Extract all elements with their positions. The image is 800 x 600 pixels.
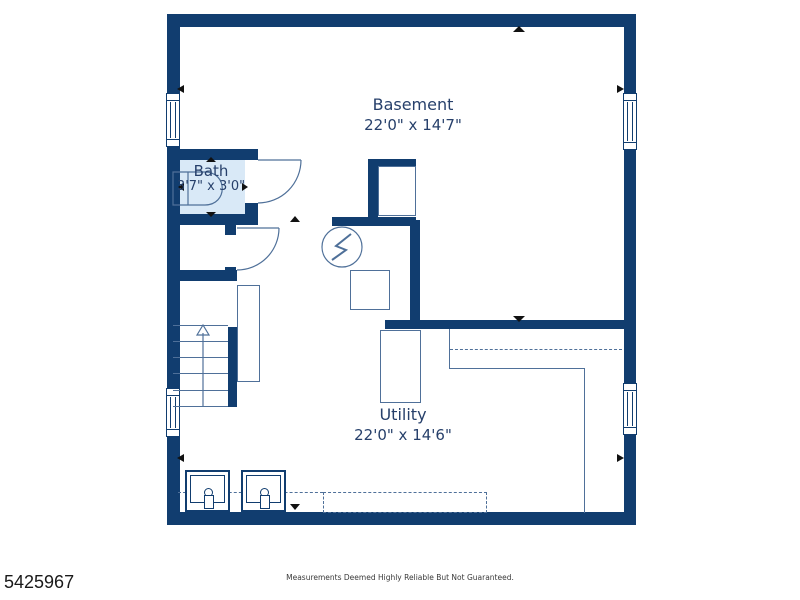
storage-boundary-line — [449, 368, 584, 369]
stairs-direction-arrow — [197, 325, 209, 407]
stair-tread — [173, 325, 228, 326]
room-label-bath: Bath 3'7" x 3'0" — [163, 163, 259, 195]
wall-top — [167, 14, 636, 27]
window-glass — [627, 102, 633, 141]
wall-left-upper — [167, 14, 180, 93]
laundry-tub-icon — [185, 470, 230, 512]
dashed-line — [450, 349, 622, 350]
electrical-panel-icon — [322, 227, 362, 267]
window-left-top — [166, 93, 180, 147]
room-label-basement: Basement 22'0" x 14'7" — [313, 94, 513, 136]
wall-left-lower — [167, 437, 180, 525]
window-sill — [167, 100, 179, 101]
stair-tread — [173, 390, 228, 391]
wall-right-upper — [624, 14, 636, 93]
wall-bottom — [167, 512, 636, 525]
stair-side-structure — [237, 285, 260, 382]
window-sill — [624, 427, 636, 428]
stair-wall — [228, 327, 237, 407]
stair-tread — [173, 357, 228, 358]
room-dimensions: 3'7" x 3'0" — [163, 179, 259, 195]
closet-wall-bottom — [167, 270, 237, 281]
closet-wall-right-upper — [225, 225, 236, 235]
room-dimensions: 22'0" x 14'7" — [313, 115, 513, 136]
dashed-area — [323, 492, 487, 513]
floorplan-canvas: Basement 22'0" x 14'7" Bath 3'7" x 3'0" … — [0, 0, 800, 600]
window-sill — [624, 100, 636, 101]
window-glass — [170, 102, 176, 138]
window-sill — [624, 390, 636, 391]
window-right-bottom — [623, 383, 637, 435]
room-dimensions: 22'0" x 14'6" — [303, 425, 503, 446]
wall-right-lower — [624, 435, 636, 525]
stair-tread — [173, 341, 228, 342]
tub-spout-icon — [204, 495, 214, 509]
furnace — [380, 330, 421, 403]
window-right-top — [623, 93, 637, 150]
mech-closet-wall-bottom — [332, 217, 416, 226]
door-swing-closet — [237, 228, 279, 270]
stair-tread — [173, 406, 228, 407]
disclaimer-text: Measurements Deemed Highly Reliable But … — [0, 573, 800, 582]
wall-right-mid — [624, 150, 636, 383]
tub-spout-icon — [260, 495, 270, 509]
utility-wall-top — [385, 320, 636, 329]
window-sill — [624, 142, 636, 143]
water-heater — [378, 166, 416, 216]
room-name: Utility — [303, 404, 503, 425]
bath-wall-top — [167, 149, 258, 160]
room-name: Bath — [163, 163, 259, 179]
window-glass — [170, 397, 176, 428]
door-swing-bath — [258, 160, 301, 203]
bath-wall-bottom — [167, 214, 258, 225]
laundry-tub-icon — [241, 470, 286, 512]
window-glass — [627, 392, 633, 426]
room-name: Basement — [313, 94, 513, 115]
appliance-square — [350, 270, 390, 310]
stair-tread — [173, 373, 228, 374]
window-left-bottom — [166, 388, 180, 437]
window-sill — [167, 395, 179, 396]
mech-closet-wall-left — [368, 159, 378, 220]
window-sill — [167, 139, 179, 140]
center-wall-vertical — [410, 220, 420, 329]
room-label-utility: Utility 22'0" x 14'6" — [303, 404, 503, 446]
storage-boundary-line — [584, 368, 585, 513]
window-sill — [167, 429, 179, 430]
